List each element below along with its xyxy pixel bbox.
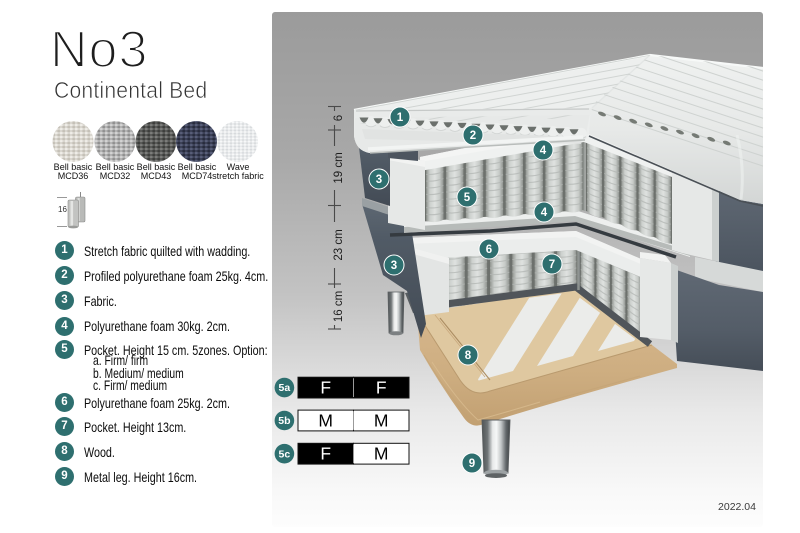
svg-text:8: 8 bbox=[465, 350, 472, 362]
svg-text:F: F bbox=[376, 377, 387, 397]
svg-text:F: F bbox=[320, 444, 331, 464]
svg-text:19 cm: 19 cm bbox=[333, 152, 345, 183]
svg-text:5a: 5a bbox=[279, 382, 291, 394]
svg-text:4: 4 bbox=[540, 145, 547, 157]
svg-text:23 cm: 23 cm bbox=[333, 229, 345, 260]
svg-text:4: 4 bbox=[541, 207, 548, 219]
svg-text:16 cm: 16 cm bbox=[333, 291, 345, 322]
svg-text:M: M bbox=[318, 410, 333, 430]
svg-text:F: F bbox=[320, 377, 331, 397]
svg-text:6: 6 bbox=[333, 115, 345, 121]
svg-text:5b: 5b bbox=[278, 415, 290, 427]
svg-text:9: 9 bbox=[469, 458, 475, 470]
svg-text:7: 7 bbox=[549, 259, 555, 271]
svg-text:M: M bbox=[374, 410, 389, 430]
svg-text:2022.04: 2022.04 bbox=[718, 501, 756, 513]
svg-text:3: 3 bbox=[391, 260, 397, 272]
svg-text:5: 5 bbox=[464, 192, 471, 204]
svg-text:3: 3 bbox=[376, 174, 382, 186]
svg-text:6: 6 bbox=[486, 244, 492, 256]
svg-text:M: M bbox=[374, 444, 389, 464]
svg-text:1: 1 bbox=[397, 112, 404, 124]
svg-text:2: 2 bbox=[470, 130, 476, 142]
svg-text:5c: 5c bbox=[279, 448, 291, 460]
